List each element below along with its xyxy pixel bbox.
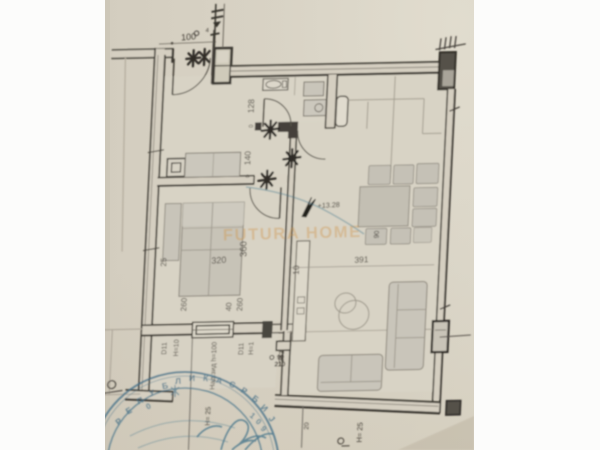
svg-text:320: 320 bbox=[211, 255, 226, 266]
svg-text:Л: Л bbox=[175, 376, 182, 386]
svg-text:FUTURA HOME: FUTURA HOME bbox=[223, 223, 362, 245]
svg-text:10: 10 bbox=[291, 265, 301, 275]
svg-text:Н= 25: Н= 25 bbox=[355, 422, 365, 442]
svg-text:20: 20 bbox=[303, 422, 310, 430]
svg-text:25: 25 bbox=[159, 257, 168, 267]
svg-text:90: 90 bbox=[373, 230, 381, 238]
svg-text:40: 40 bbox=[224, 302, 233, 312]
svg-text:D11: D11 bbox=[238, 343, 246, 356]
svg-text:210: 210 bbox=[274, 361, 286, 368]
svg-text:391: 391 bbox=[354, 254, 369, 265]
svg-text:И: И bbox=[189, 373, 195, 383]
svg-text:H=10: H=10 bbox=[173, 339, 181, 356]
svg-text:140: 140 bbox=[242, 151, 253, 166]
svg-text:D11: D11 bbox=[161, 342, 169, 355]
svg-text:H=1: H=1 bbox=[248, 342, 256, 355]
svg-text:260: 260 bbox=[179, 297, 189, 311]
svg-text:260: 260 bbox=[235, 297, 245, 311]
svg-text:128: 128 bbox=[246, 99, 257, 114]
svg-text:Н= 25: Н= 25 bbox=[205, 407, 213, 426]
